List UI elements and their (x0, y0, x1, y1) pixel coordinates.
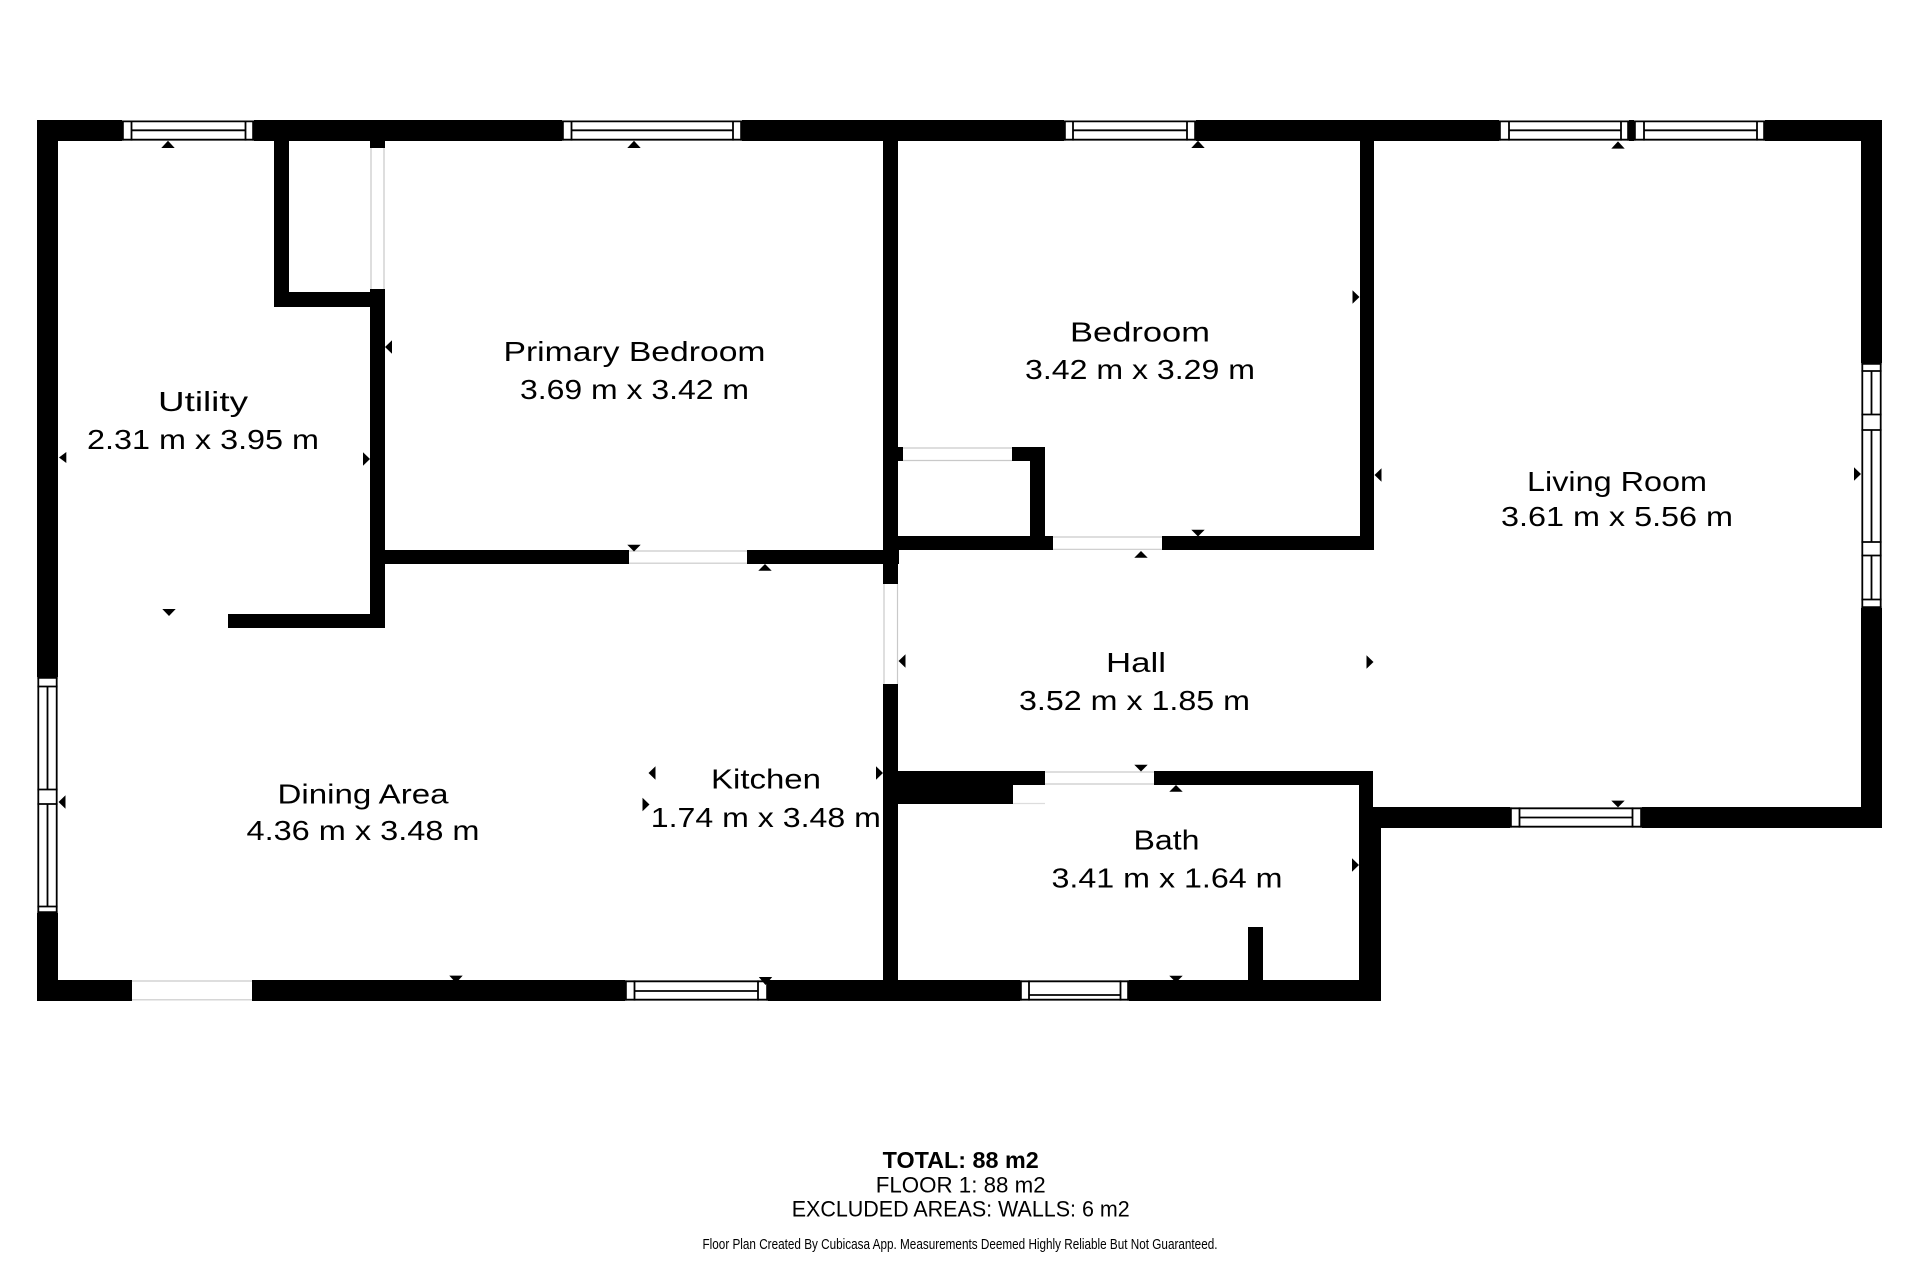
svg-text:4.36 m x 3.48 m: 4.36 m x 3.48 m (247, 815, 480, 846)
svg-text:Kitchen: Kitchen (711, 764, 821, 795)
svg-text:Hall: Hall (1106, 647, 1166, 678)
svg-text:Bath: Bath (1134, 825, 1200, 856)
svg-text:Utility: Utility (158, 386, 248, 417)
svg-text:Living Room: Living Room (1527, 466, 1707, 497)
svg-text:Primary Bedroom: Primary Bedroom (504, 336, 766, 367)
svg-text:2.31 m x 3.95 m: 2.31 m x 3.95 m (87, 424, 319, 455)
svg-text:EXCLUDED AREAS: WALLS: 6 m2: EXCLUDED AREAS: WALLS: 6 m2 (792, 1197, 1130, 1222)
svg-text:Floor Plan Created By Cubicasa: Floor Plan Created By Cubicasa App. Meas… (703, 1237, 1218, 1253)
svg-text:3.69 m x 3.42 m: 3.69 m x 3.42 m (520, 374, 749, 405)
svg-text:3.41 m x 1.64 m: 3.41 m x 1.64 m (1052, 863, 1283, 894)
svg-text:Dining Area: Dining Area (278, 779, 449, 810)
svg-text:TOTAL: 88 m2: TOTAL: 88 m2 (883, 1147, 1039, 1173)
svg-text:3.52 m x 1.85 m: 3.52 m x 1.85 m (1019, 685, 1250, 716)
svg-text:3.42 m x 3.29 m: 3.42 m x 3.29 m (1025, 354, 1255, 385)
svg-text:Bedroom: Bedroom (1070, 317, 1210, 348)
svg-text:1.74 m x 3.48 m: 1.74 m x 3.48 m (651, 802, 881, 833)
svg-text:FLOOR 1: 88 m2: FLOOR 1: 88 m2 (876, 1172, 1046, 1197)
svg-text:3.61 m x 5.56 m: 3.61 m x 5.56 m (1501, 501, 1733, 532)
